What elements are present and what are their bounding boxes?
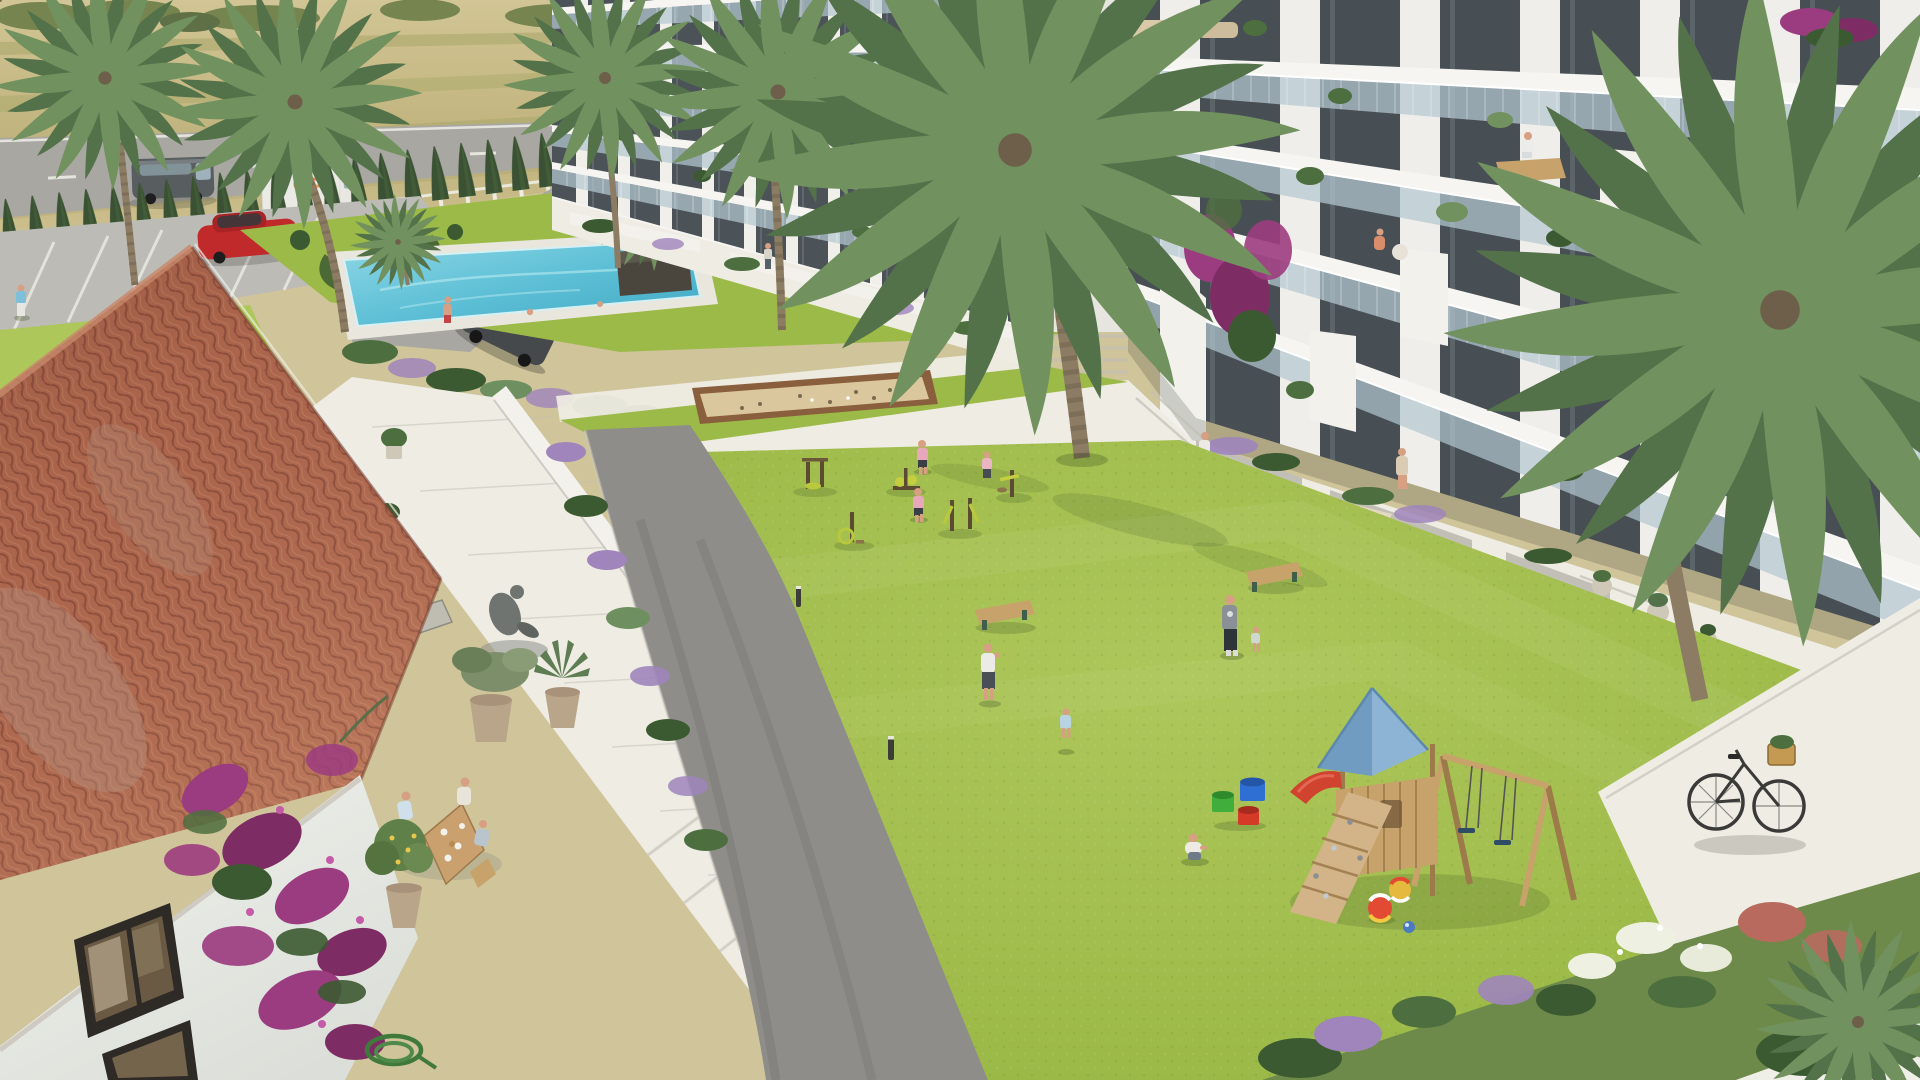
person-dining [473,820,490,847]
bike-seat [1728,754,1740,759]
person-on-path [764,243,772,269]
garden-hose [367,1036,436,1068]
render-image [0,0,1920,1080]
swimmer [597,301,603,307]
person-dining [457,778,471,806]
scene-canvas [0,0,1920,1080]
person-dining [397,792,414,822]
swimmer [527,309,533,315]
potted-olive-tree [452,647,538,742]
